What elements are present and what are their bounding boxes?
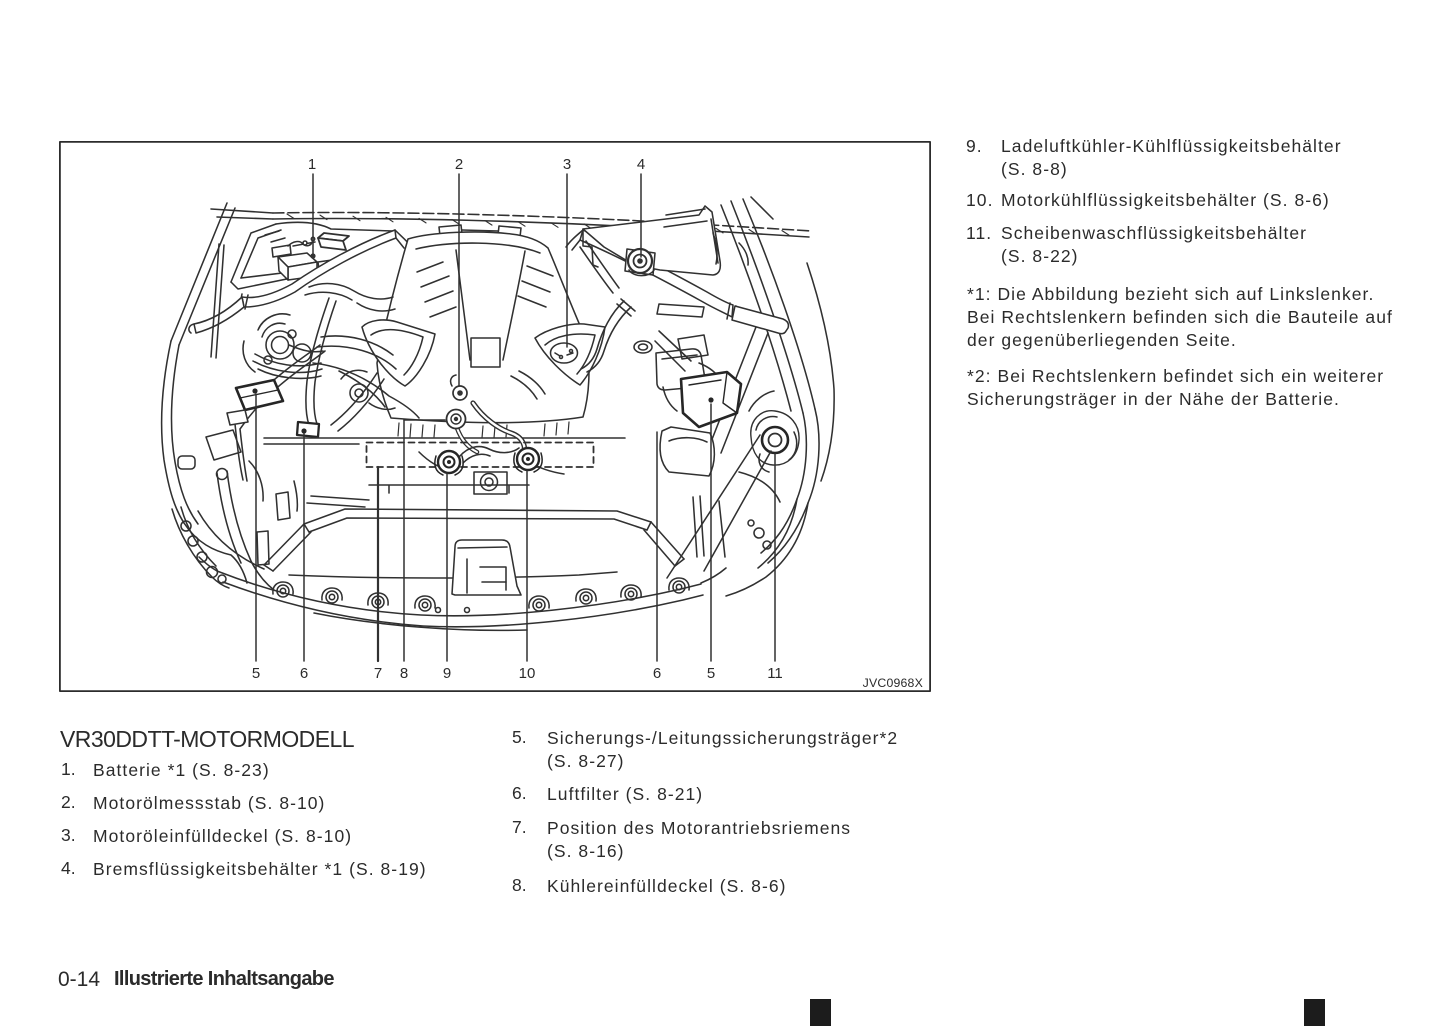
svg-text:4: 4 — [637, 156, 645, 173]
svg-text:3: 3 — [563, 156, 571, 173]
svg-text:6: 6 — [653, 665, 661, 682]
svg-text:5: 5 — [252, 665, 260, 682]
svg-text:6: 6 — [300, 665, 308, 682]
svg-text:JVC0968X: JVC0968X — [863, 676, 923, 690]
svg-text:10: 10 — [519, 665, 536, 682]
svg-text:9: 9 — [443, 665, 451, 682]
svg-text:8: 8 — [400, 665, 408, 682]
svg-text:11: 11 — [767, 665, 783, 682]
svg-text:1: 1 — [308, 156, 316, 173]
svg-text:2: 2 — [455, 156, 463, 173]
svg-text:5: 5 — [707, 665, 715, 682]
svg-text:7: 7 — [374, 665, 382, 682]
